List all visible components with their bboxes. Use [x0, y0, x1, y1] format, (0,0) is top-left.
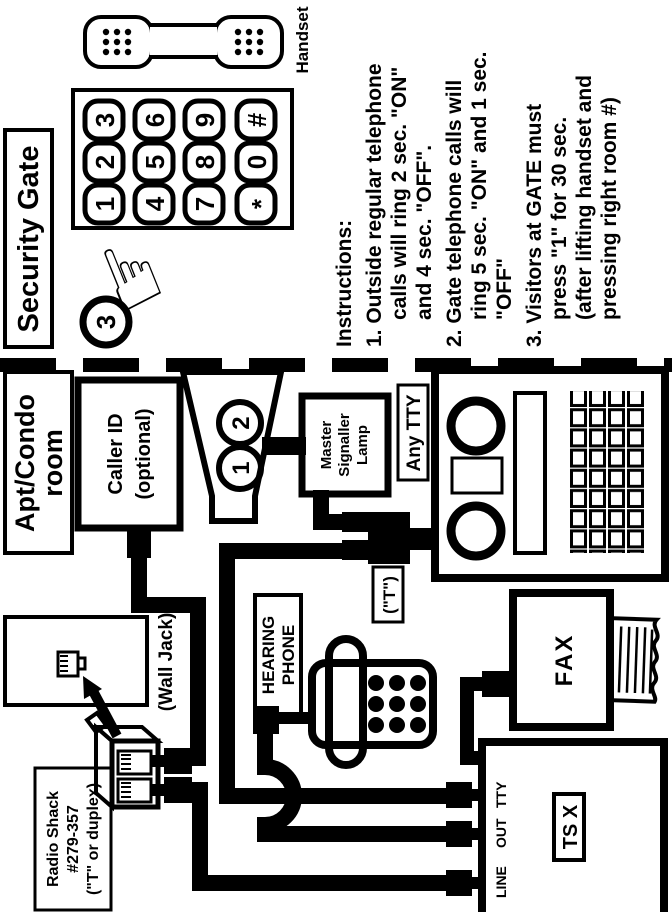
key-8-label: 8 [190, 155, 220, 169]
caller-id-label-line1: Caller ID [105, 413, 127, 494]
master-lamp-line1: Master [318, 421, 335, 470]
line-port-plug [446, 870, 472, 896]
duplex-plug1 [164, 748, 192, 774]
hearing-phone-line1: HEARING [259, 616, 278, 694]
key-hash-label: # [242, 112, 272, 127]
radio-shack-line3: ("T" or duplex) [85, 783, 102, 895]
instruction-line: 1. Outside regular telephone [363, 63, 386, 347]
key-3-label: 3 [90, 113, 120, 127]
key-9-label: 9 [190, 113, 220, 127]
out-port-plug [446, 821, 472, 847]
port-label-out: OUT [493, 818, 509, 848]
instruction-line: calls will ring 2 sec. "ON" [388, 67, 411, 320]
tty-port-plug [446, 782, 472, 808]
apt-condo-title-line1: Apt/Condo [10, 394, 40, 532]
key-6-label: 6 [140, 113, 170, 127]
key-0-label: 0 [242, 155, 272, 169]
instruction-line: 2. Gate telephone calls will [443, 80, 466, 347]
security-gate-title: Security Gate [13, 146, 45, 333]
telephone-keypad-dots [368, 675, 426, 733]
t-adapter-label: ("T") [380, 576, 399, 614]
duplex-plug2 [164, 777, 192, 803]
rotated-stage: Apt/Condo room Caller ID (optional) 1 2 … [0, 0, 672, 912]
master-lamp-line3: Lamp [354, 425, 371, 465]
radio-shack-line2: #279-357 [65, 805, 82, 873]
instruction-line: "OFF" [493, 258, 516, 320]
key-5-label: 5 [140, 155, 170, 169]
hearing-phone-line2: PHONE [279, 625, 298, 685]
wall-jack-label: (Wall Jack) [156, 613, 177, 712]
key-4-label: 4 [140, 196, 170, 211]
instruction-line: ring 5 sec. "ON" and 1 sec. [468, 51, 491, 320]
fax-label: FAX [551, 634, 578, 687]
key-1-label: 1 [90, 197, 120, 211]
handset-grip [150, 23, 217, 59]
caller-id-label-line2: (optional) [133, 408, 155, 499]
instruction-line: (after lifting handset and [573, 75, 596, 320]
ringer-number-2: 2 [228, 416, 255, 429]
instructions-heading: Instructions: [333, 220, 356, 347]
port-label-line: LINE [493, 866, 509, 898]
instruction-line: 3. Visitors at GATE must [523, 104, 546, 347]
instructions-block: Instructions: 1. Outside regular telepho… [333, 51, 621, 347]
tty-keyboard [568, 391, 644, 553]
scanned-diagram-page: Apt/Condo room Caller ID (optional) 1 2 … [0, 0, 672, 912]
apt-condo-title-line2: room [38, 429, 68, 497]
port-label-tty: TTY [493, 781, 509, 808]
instruction-line: and 4 sec. "OFF". [413, 145, 436, 320]
master-lamp-line2: Signaller [336, 413, 353, 477]
t-adapter-body [368, 512, 410, 564]
tsx-label: TS X [560, 804, 582, 849]
key-2-label: 2 [90, 155, 120, 169]
t-adapter-plug-right [342, 512, 372, 532]
security-gate-title-box: Security Gate [5, 130, 52, 347]
instruction-line: pressing right room #) [598, 97, 621, 320]
any-tty-label: Any TTY [404, 394, 425, 471]
key-7-label: 7 [190, 197, 220, 211]
ringer-number-1: 1 [228, 461, 255, 474]
instruction-line: press "1" for 30 sec. [548, 117, 571, 320]
t-adapter-plug-left [342, 540, 372, 560]
key-star-label: * [246, 198, 276, 209]
handset-label: Handset [293, 6, 312, 73]
radio-shack-line1: Radio Shack [45, 791, 62, 887]
